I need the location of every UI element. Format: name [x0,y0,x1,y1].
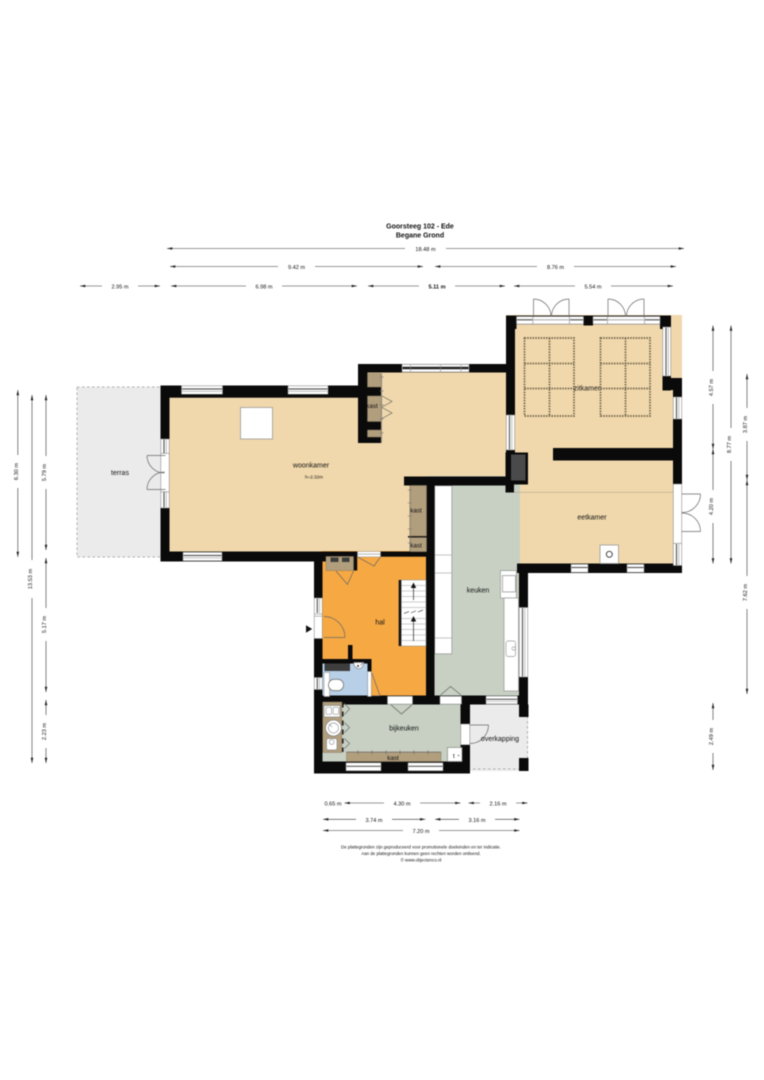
svg-text:3.87 m: 3.87 m [743,416,749,433]
svg-text:kast: kast [410,508,422,515]
svg-text:De plattegronden zijn geproduc: De plattegronden zijn geproduceerd voor … [341,845,501,850]
svg-text:woonkamer: woonkamer [292,463,330,470]
svg-text:5.11 m: 5.11 m [428,285,445,291]
svg-text:7.20 m: 7.20 m [412,829,429,835]
svg-text:Goorsteeg 102 - Ede: Goorsteeg 102 - Ede [386,224,454,231]
svg-text:overkapping: overkapping [481,736,519,743]
svg-text:5.79 m: 5.79 m [42,464,48,481]
svg-text:h=2.32m: h=2.32m [305,475,323,480]
svg-text:6.30 m: 6.30 m [14,463,20,480]
svg-text:hal: hal [375,620,385,627]
svg-text:terras: terras [111,470,129,477]
svg-text:7.62 m: 7.62 m [743,584,749,601]
svg-text:6.98 m: 6.98 m [255,285,272,291]
svg-text:eetkamer: eetkamer [577,515,607,522]
svg-text:Begane Grond: Begane Grond [396,233,444,240]
svg-text:2.95 m: 2.95 m [111,285,128,291]
svg-text:zitkamer: zitkamer [574,386,601,393]
svg-text:18.48 m: 18.48 m [415,247,436,253]
svg-text:13.53 m: 13.53 m [28,569,34,590]
svg-text:kast: kast [410,543,422,550]
svg-text:3.16 m: 3.16 m [468,818,485,824]
svg-text:4.20 m: 4.20 m [709,498,715,515]
svg-text:5.54 m: 5.54 m [584,285,601,291]
svg-text:4.57 m: 4.57 m [709,379,715,396]
svg-text:8.77 m: 8.77 m [727,436,733,453]
svg-text:keuken: keuken [467,588,490,595]
svg-text:2.49 m: 2.49 m [709,728,715,745]
svg-text:9.42 m: 9.42 m [288,265,305,271]
svg-text:© www.objectenco.nl: © www.objectenco.nl [401,858,442,863]
svg-text:0.65 m: 0.65 m [324,802,341,808]
svg-text:2.23 m: 2.23 m [42,723,48,740]
svg-text:5.17 m: 5.17 m [42,616,48,633]
svg-text:8.76 m: 8.76 m [547,265,564,271]
svg-text:bijkeuken: bijkeuken [389,726,419,733]
svg-text:Aan de plattegronden kunnen ge: Aan de plattegronden kunnen geen rechten… [361,851,480,856]
svg-text:3.74 m: 3.74 m [365,818,382,824]
svg-text:4.30 m: 4.30 m [393,802,410,808]
svg-text:kast: kast [387,755,399,762]
svg-text:kast: kast [366,403,378,410]
svg-text:2.16 m: 2.16 m [489,802,506,808]
